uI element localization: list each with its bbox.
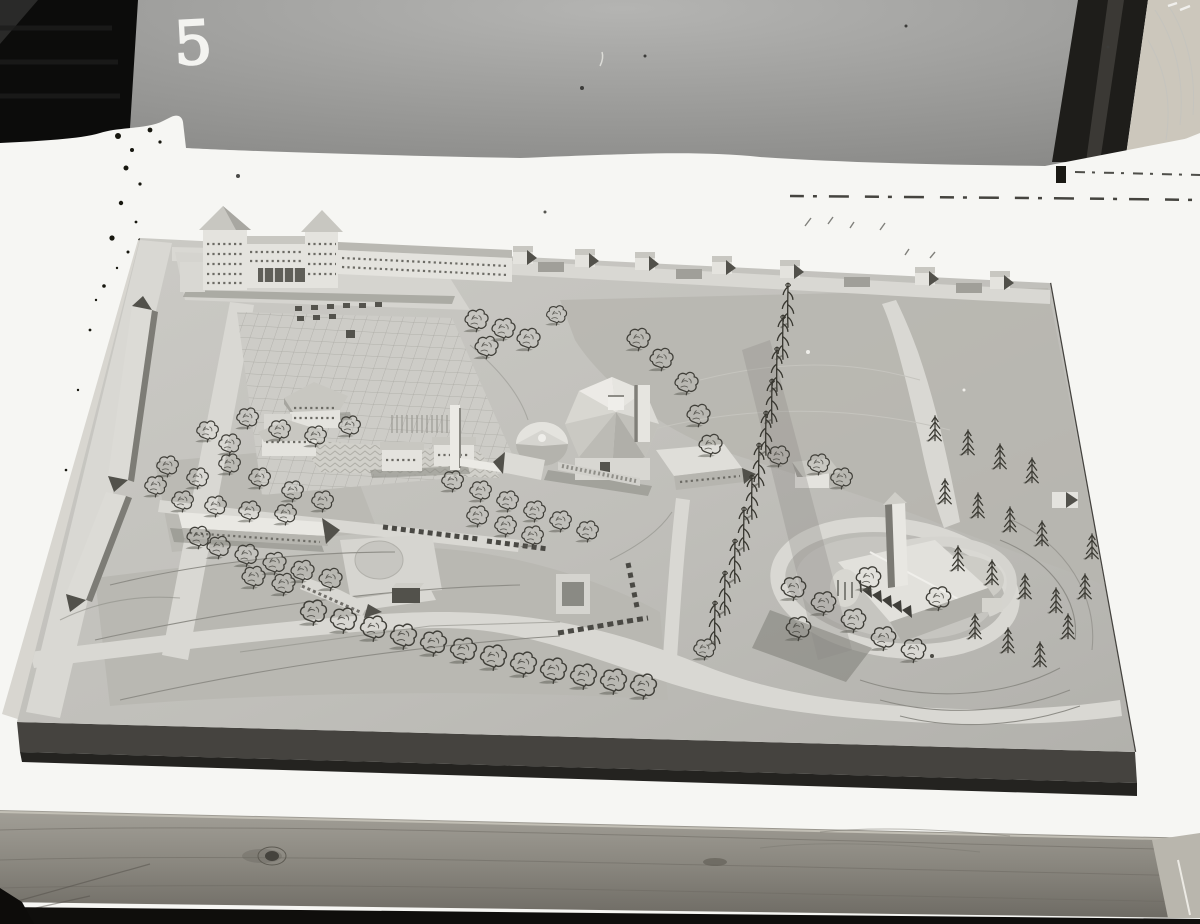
- car: [327, 304, 334, 309]
- driveway: [844, 277, 870, 287]
- tower-west-wall: [203, 230, 247, 290]
- dust: [905, 25, 908, 28]
- dust: [236, 174, 240, 178]
- garden-square: [556, 574, 590, 614]
- court-wall-west: [450, 405, 460, 470]
- speck: [116, 267, 118, 269]
- entrance-canopy: [258, 268, 305, 282]
- wing-center-roofband: [247, 236, 305, 244]
- gray-backdrop: [118, 0, 1088, 172]
- speck: [89, 329, 92, 332]
- speck: [65, 469, 68, 472]
- side-chapel: [982, 598, 1002, 612]
- speck: [130, 148, 134, 152]
- speck: [102, 284, 106, 288]
- dust-bright: [963, 389, 966, 392]
- speck: [158, 140, 161, 143]
- car: [295, 306, 302, 311]
- knot: [265, 851, 279, 861]
- annex-west: [180, 262, 205, 292]
- tower-east-wall: [305, 232, 338, 288]
- house-east-of-loop: [1052, 492, 1078, 508]
- car: [375, 302, 382, 307]
- speck: [148, 128, 153, 133]
- car: [329, 314, 336, 319]
- speck: [77, 389, 79, 391]
- dust-bright: [806, 350, 810, 354]
- utility-hut: [392, 588, 420, 603]
- car: [313, 315, 320, 320]
- car: [311, 305, 318, 310]
- car: [343, 303, 350, 308]
- circle-lawn: [355, 541, 403, 579]
- driveway: [538, 262, 564, 272]
- knot-small: [703, 858, 727, 866]
- photograph-scan: 5: [0, 0, 1200, 924]
- black-backdrop-left: [0, 0, 138, 146]
- speck: [119, 201, 123, 205]
- speck: [127, 251, 130, 254]
- utility-hut-roof: [392, 583, 424, 588]
- car: [297, 316, 304, 321]
- driveway: [676, 269, 702, 279]
- photo-canvas: 5: [0, 0, 1200, 924]
- speck: [135, 221, 138, 224]
- dust: [544, 211, 547, 214]
- octagon-church: [565, 377, 659, 480]
- driveway: [956, 283, 982, 293]
- kiosk: [346, 330, 355, 338]
- speck: [138, 182, 141, 185]
- emulsion-chip: [1056, 166, 1066, 183]
- dust: [644, 55, 647, 58]
- speck: [115, 133, 121, 139]
- dust: [580, 86, 584, 90]
- frame-number: 5: [172, 8, 214, 80]
- bed-inner: [562, 582, 584, 606]
- dust: [1107, 46, 1110, 49]
- speck: [109, 235, 114, 240]
- speck: [124, 166, 129, 171]
- speck: [95, 299, 97, 301]
- dust: [930, 654, 934, 658]
- lantern: [608, 396, 624, 410]
- courtyard-hatch: [390, 415, 460, 433]
- car: [359, 303, 366, 308]
